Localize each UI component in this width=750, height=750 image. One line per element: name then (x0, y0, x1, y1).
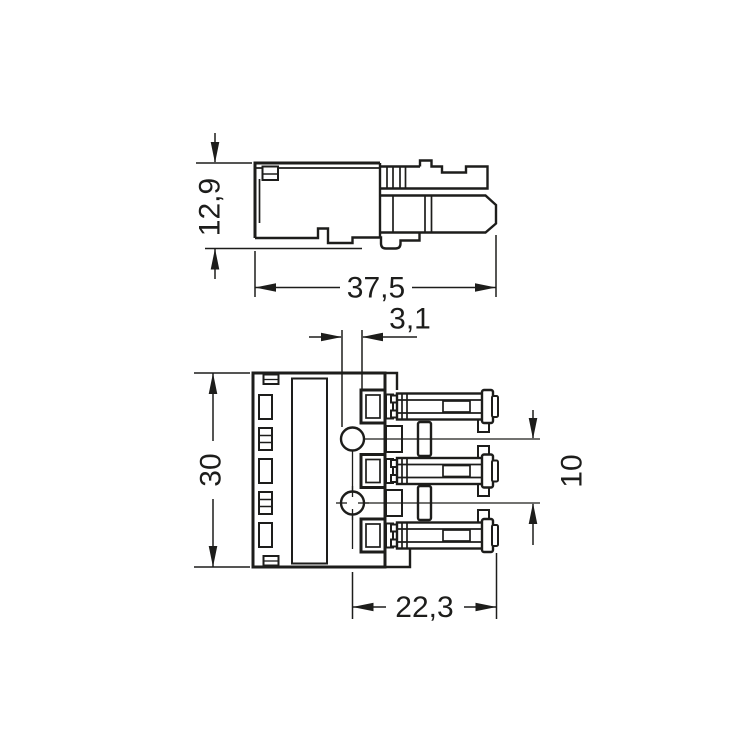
test-hole-1 (341, 428, 364, 451)
pole-1 (361, 390, 498, 423)
pole-3 (361, 519, 498, 552)
dim-label-side-width: 37,5 (347, 272, 405, 305)
pole-2 (361, 455, 498, 488)
dim-label-side-height: 12,9 (194, 178, 227, 236)
mounting-slots (259, 395, 272, 547)
marking-window (292, 379, 327, 564)
dim-label-front-pitch: 10 (556, 454, 589, 487)
dim-label-front-height: 30 (195, 453, 228, 486)
technical-drawing-page: 12,9 37,5 (0, 0, 750, 750)
connector-dimension-drawing: 12,9 37,5 (0, 0, 750, 750)
dim-label-front-notch: 3,1 (389, 303, 431, 336)
dim-label-front-depth: 22,3 (395, 591, 453, 624)
